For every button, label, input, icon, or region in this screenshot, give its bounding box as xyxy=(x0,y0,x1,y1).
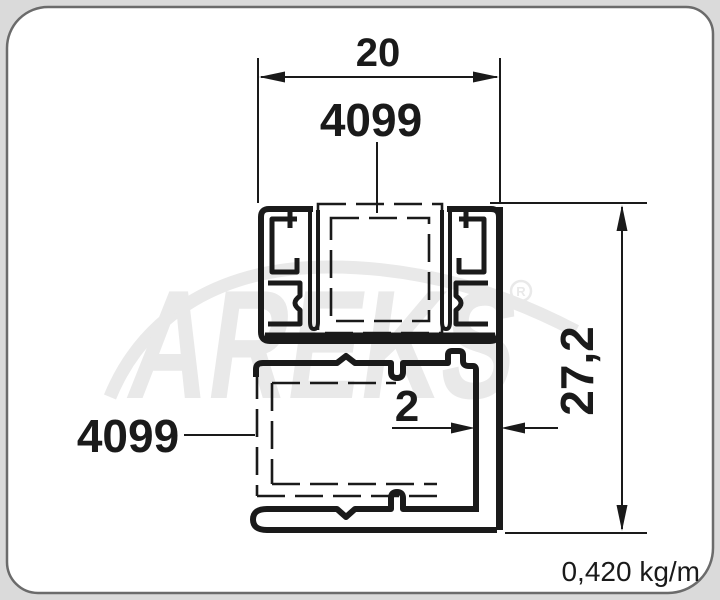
registered-trademark-letter: R xyxy=(516,284,526,299)
technical-drawing-canvas: AREKS R xyxy=(0,0,720,600)
profile-number-top: 4099 xyxy=(320,94,422,146)
areks-watermark: AREKS R xyxy=(110,259,576,432)
weight-per-meter: 0,420 kg/m xyxy=(561,556,700,587)
width-dimension-value: 20 xyxy=(356,31,401,75)
wall-dimension-value: 2 xyxy=(395,382,419,431)
height-dimension-value: 27,2 xyxy=(551,326,603,416)
profile-number-left: 4099 xyxy=(77,410,179,462)
